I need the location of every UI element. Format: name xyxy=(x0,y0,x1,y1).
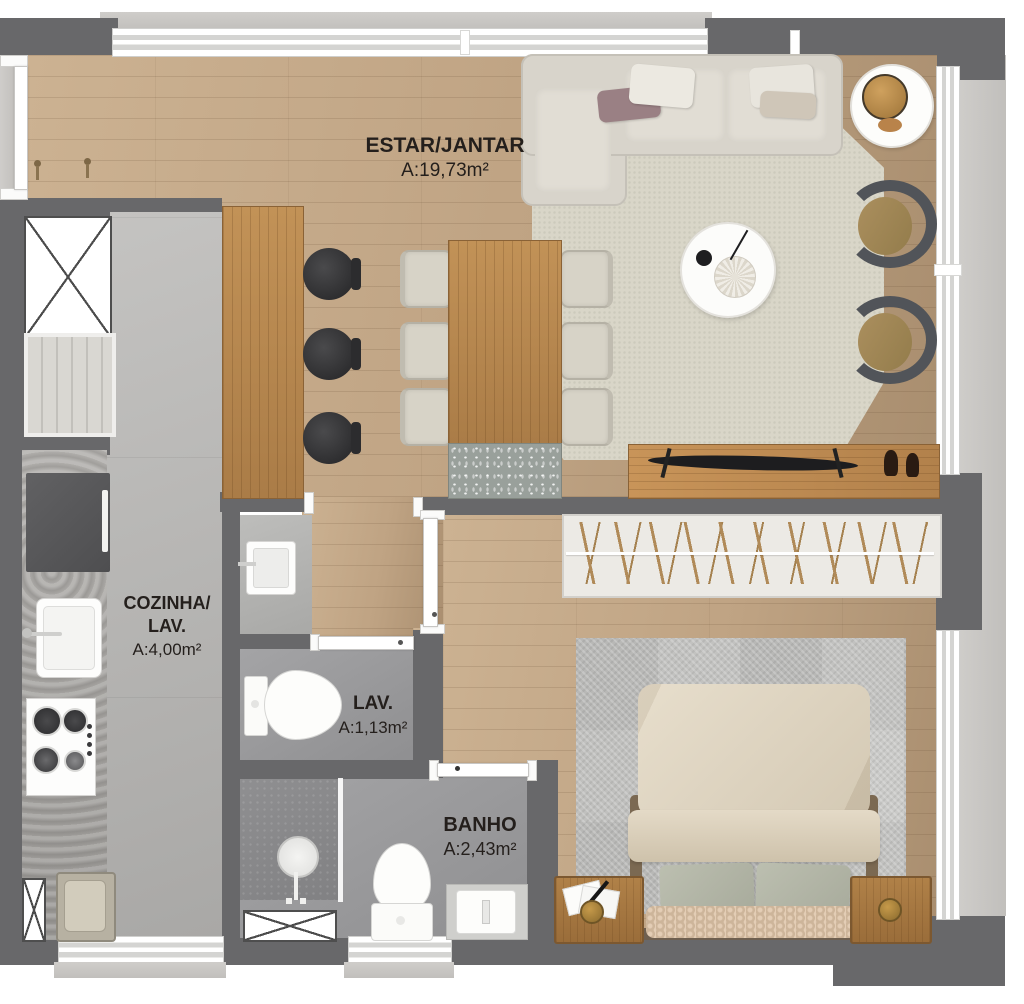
shaft-x-icon xyxy=(24,216,112,338)
shower-head-icon xyxy=(277,836,319,878)
shower-valve xyxy=(300,898,306,904)
bed-duvet xyxy=(638,684,870,818)
window-mullion xyxy=(934,264,962,276)
room-label-estar-jantar: ESTAR/JANTAR A:19,73m² xyxy=(325,132,565,184)
bed-duvet-fold xyxy=(628,810,880,862)
brick-shaft-box xyxy=(24,333,116,437)
room-area: A:19,73m² xyxy=(325,159,565,184)
burner xyxy=(62,708,88,734)
banho-door-handle xyxy=(455,766,460,771)
lav-door-handle xyxy=(398,640,403,645)
bar-stool xyxy=(303,328,355,380)
coffee-table-bowl xyxy=(696,250,712,266)
lav-toilet-button xyxy=(251,700,259,708)
room-label-lav: LAV. A:1,13m² xyxy=(318,692,428,739)
banho-window-ledge xyxy=(344,962,454,978)
dining-chair xyxy=(400,250,453,308)
room-name: LAV. xyxy=(318,692,428,717)
dining-chair xyxy=(560,250,613,308)
kitchen-faucet xyxy=(22,628,32,638)
shower-valve xyxy=(286,898,292,904)
bar-stool xyxy=(303,412,355,464)
floor-plan: ESTAR/JANTAR A:19,73m² COZINHA/ LAV. A:4… xyxy=(0,0,1024,1004)
wall-left xyxy=(0,198,22,965)
wall-bottom-a xyxy=(22,938,58,965)
decor-item xyxy=(878,118,902,132)
room-name: COZINHA/ xyxy=(106,592,228,615)
kitchen-window-ledge xyxy=(54,962,226,978)
laundry-tank-basin xyxy=(64,880,106,932)
wardrobe-rail xyxy=(566,552,934,555)
bar-stool-back xyxy=(351,338,361,370)
room-area: A:1,13m² xyxy=(318,717,428,739)
stove-knob xyxy=(87,751,92,756)
wall-right-mid xyxy=(936,473,982,630)
bar-stool-back xyxy=(351,258,361,290)
bedroom-door xyxy=(423,518,438,627)
dining-table xyxy=(448,240,562,445)
globe-decor xyxy=(862,74,908,120)
armchair-cushion xyxy=(858,197,912,255)
dining-chair xyxy=(400,388,453,446)
coffee-table-plate xyxy=(714,256,756,298)
dining-table-terrazzo-end xyxy=(448,443,562,499)
burner xyxy=(64,750,86,772)
stove-knob xyxy=(87,742,92,747)
wall-banho-top xyxy=(222,760,437,779)
room-name: BANHO xyxy=(424,812,536,838)
banho-toilet-button xyxy=(396,916,405,925)
nook-faucet xyxy=(238,562,256,566)
coat-hook-icon xyxy=(36,166,39,180)
room-label-cozinha-lav: COZINHA/ LAV. A:4,00m² xyxy=(106,592,228,661)
sofa-pillow xyxy=(628,63,695,108)
bedroom-door-handle xyxy=(432,612,437,617)
dining-chair xyxy=(560,322,613,380)
room-area: A:4,00m² xyxy=(106,639,228,661)
dining-chair xyxy=(400,322,453,380)
bed-throw xyxy=(646,906,862,938)
armchair xyxy=(843,296,937,384)
burner xyxy=(32,706,62,736)
wall-bottom-c xyxy=(450,938,546,965)
room-name: ESTAR/JANTAR xyxy=(325,132,565,159)
table-lamp xyxy=(878,898,902,922)
armchair-cushion xyxy=(858,313,912,371)
wall-lav-top xyxy=(238,634,318,649)
room-area: A:2,43m² xyxy=(424,838,536,861)
window-mullion xyxy=(790,30,800,55)
stove-knob xyxy=(87,733,92,738)
refrigerator xyxy=(26,473,110,572)
bottle-decor xyxy=(884,450,898,476)
stove-knob xyxy=(87,724,92,729)
shower-glass xyxy=(338,778,343,902)
wall-living-bedroom xyxy=(413,497,940,515)
room-name: LAV. xyxy=(106,615,228,638)
entry-door xyxy=(14,66,28,190)
armchair xyxy=(843,180,937,268)
banho-door xyxy=(437,763,529,777)
dining-chair xyxy=(560,388,613,446)
shower-arm xyxy=(294,872,298,900)
room-label-banho: BANHO A:2,43m² xyxy=(424,812,536,861)
vanity-faucet xyxy=(482,900,490,924)
coat-hook-icon xyxy=(86,164,89,178)
kitchen-sink-basin xyxy=(43,606,95,670)
refrigerator-handle xyxy=(102,490,108,552)
balcony-window-top xyxy=(112,28,708,57)
burner xyxy=(32,746,60,774)
wall-top-right xyxy=(705,18,939,55)
bar-stool xyxy=(303,248,355,300)
nook-washbasin-bowl xyxy=(253,548,289,588)
kitchen-floor xyxy=(107,212,222,938)
wall-cap xyxy=(304,492,314,514)
kitchen-island xyxy=(222,206,304,499)
window-mullion xyxy=(460,30,470,55)
bottle-decor xyxy=(906,453,919,477)
bedroom-window-right xyxy=(936,630,960,920)
bar-stool-back xyxy=(351,422,361,454)
shaft-x-icon xyxy=(243,910,337,942)
wall-bottom-b xyxy=(222,938,348,965)
shaft-x-icon xyxy=(22,878,46,942)
table-lamp xyxy=(580,900,604,924)
sofa-pillow xyxy=(759,91,816,120)
wall-top-left xyxy=(0,18,118,55)
